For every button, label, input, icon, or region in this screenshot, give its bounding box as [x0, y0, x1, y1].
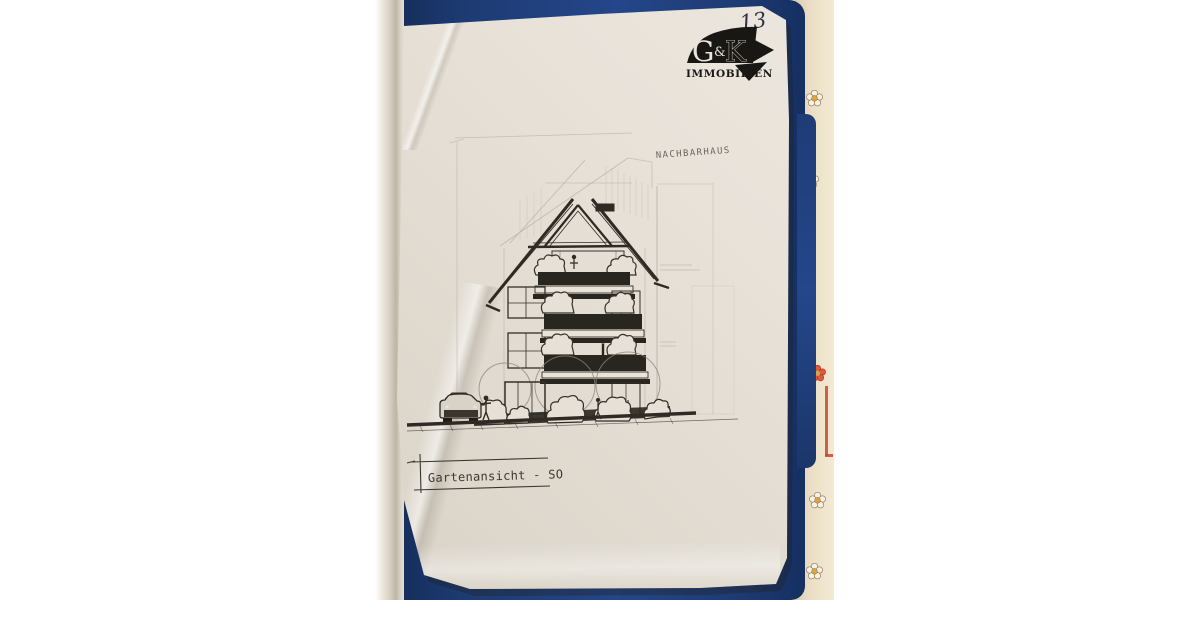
tablecloth-red-stripe [825, 386, 828, 456]
flower-icon [806, 563, 823, 580]
tablecloth-red-stripe [825, 454, 833, 457]
drawing-sheet: 13 G & K IMMOBILIEN [0, 0, 1200, 600]
photo-of-document: 13 G & K IMMOBILIEN [0, 0, 1200, 600]
title-block: Gartenansicht - SO [407, 454, 563, 493]
car-sketch [440, 393, 481, 423]
gk-logo: G & K IMMOBILIEN [676, 20, 780, 84]
logo-letter-g: G [692, 35, 714, 68]
figure-sketch [600, 338, 605, 356]
drawing-title: Gartenansicht - SO [428, 467, 564, 485]
logo-company-name: IMMOBILIEN [686, 68, 773, 80]
architectural-drawing: NACHBARHAUS [395, 110, 765, 510]
neighbor-house-label: NACHBARHAUS [656, 146, 732, 161]
blue-folder-tab [797, 114, 816, 468]
figure-sketch [570, 255, 578, 269]
flower-icon [809, 492, 826, 509]
flower-icon [806, 90, 823, 107]
logo-triangle-icon [751, 38, 774, 63]
paper-curl-highlight [420, 539, 781, 588]
logo-ampersand: & [714, 45, 726, 60]
logo-letter-k: K [725, 35, 747, 68]
